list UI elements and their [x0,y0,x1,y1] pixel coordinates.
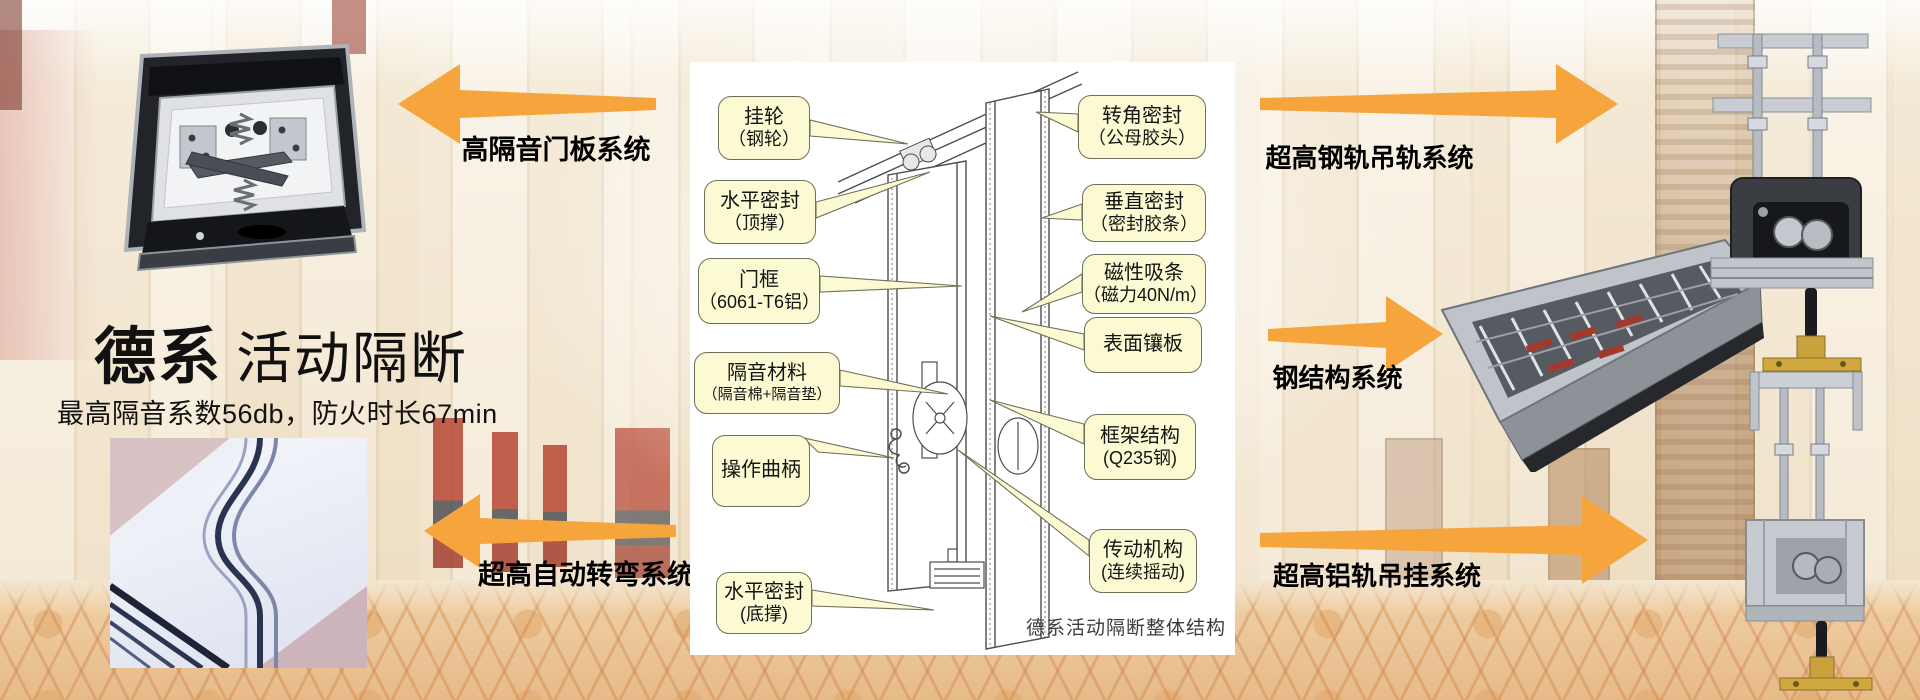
callout-text: 磁性吸条 [1104,262,1184,286]
callout-vertical-seal: 垂直密封 （密封胶条） [1082,184,1206,242]
callout-text: （磁力40N/m） [1083,285,1205,306]
product-name: 活动隔断 [236,327,468,390]
callout-text: 转角密封 [1102,105,1182,129]
callout-transmission-mechanism: 传动机构 (连续摇动) [1089,529,1197,593]
callout-text: 水平密封 [724,581,804,605]
callout-text: 框架结构 [1100,425,1180,449]
curved-track-photo [110,438,367,668]
callout-text: 表面镶板 [1103,333,1183,357]
callout-operating-crank: 操作曲柄 [712,435,810,507]
callout-text: 隔音材料 [727,362,807,386]
callout-door-frame: 门框 （6061-T6铝） [698,258,820,324]
callout-text: 门框 [739,269,779,293]
callout-text: 操作曲柄 [721,459,801,483]
callout-text: （公母胶头） [1088,128,1196,149]
callout-horizontal-seal-top: 水平密封 （顶撑） [704,180,816,244]
callout-text: 垂直密封 [1104,191,1184,215]
callout-corner-seal: 转角密封 （公母胶头） [1078,95,1206,159]
diagram-panel: 挂轮 （钢轮） 水平密封 （顶撑） 门框 （6061-T6铝） 隔音材料 （隔音… [690,62,1235,655]
aluminum-rail-trolley-photo [1718,352,1890,694]
callout-text: 挂轮 [744,106,784,130]
callout-surface-panel: 表面镶板 [1084,317,1202,373]
label-door-panel-system: 高隔音门板系统 [450,128,662,167]
callout-text: （顶撑） [724,213,796,234]
product-title: 德系活动隔断 [94,306,468,396]
callout-horizontal-seal-bottom: 水平密封 (底撑) [716,572,812,634]
slide: 德系活动隔断 最高隔音系数56db，防火时长67min 高隔音门板系统 超高自动… [0,0,1920,700]
callout-text: （隔音棉+隔音垫） [703,386,832,404]
product-subtitle: 最高隔音系数56db，防火时长67min [57,392,498,431]
brand-name: 德系 [94,323,222,392]
callout-text: 传动机构 [1103,539,1183,563]
callout-magnetic-strip: 磁性吸条 （磁力40N/m） [1082,254,1206,314]
callout-text: （密封胶条） [1090,214,1198,235]
door-panel-mechanism-photo [112,34,374,292]
label-aluminum-rail-system: 超高铝轨吊挂系统 [1272,556,1482,593]
diagram-caption: 德系活动隔断整体结构 [1026,613,1238,640]
callout-text: (Q235钢) [1103,448,1177,469]
label-auto-turning-system: 超高自动转弯系统 [478,553,693,592]
callout-text: (连续摇动) [1101,562,1185,583]
callout-text: （6061-T6铝） [699,292,819,313]
steel-rail-trolley-photo [1693,6,1891,374]
callout-text: 水平密封 [720,190,800,214]
label-steel-structure-system: 钢结构系统 [1270,358,1405,395]
label-steel-rail-system: 超高钢轨吊轨系统 [1262,138,1477,175]
callout-hanging-wheel: 挂轮 （钢轮） [718,96,810,160]
callout-sound-insulation-material: 隔音材料 （隔音棉+隔音垫） [694,352,840,414]
callout-frame-structure: 框架结构 (Q235钢) [1084,414,1196,480]
arrow-right-icon [1260,64,1618,144]
callout-text: (底撑) [740,604,788,625]
callout-text: （钢轮） [728,129,800,150]
